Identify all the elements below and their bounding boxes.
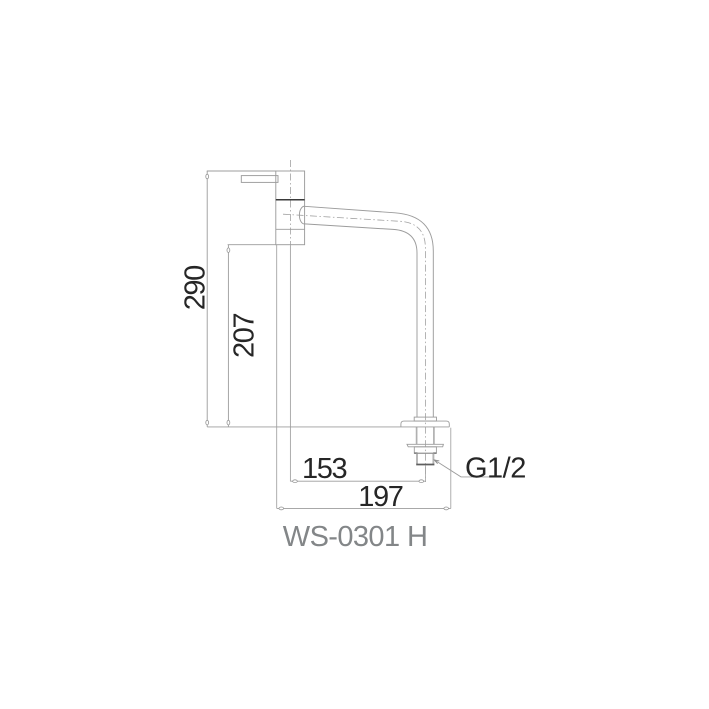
svg-text:G1/2: G1/2 bbox=[465, 452, 526, 484]
svg-text:WS-0301 H: WS-0301 H bbox=[283, 521, 428, 553]
svg-text:153: 153 bbox=[302, 453, 346, 485]
svg-text:207: 207 bbox=[228, 314, 260, 358]
svg-text:290: 290 bbox=[180, 266, 212, 310]
svg-text:197: 197 bbox=[358, 481, 402, 513]
